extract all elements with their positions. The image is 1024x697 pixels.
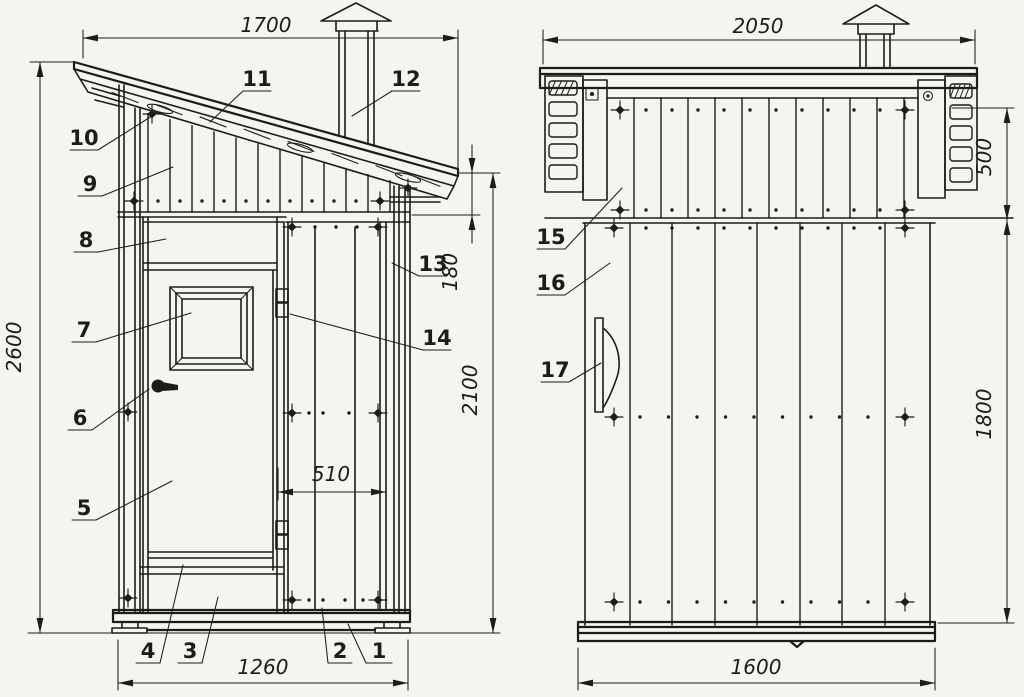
dim-front-low-side-height: 2100 <box>458 365 482 416</box>
svg-text:3: 3 <box>183 639 198 663</box>
nail-dot <box>724 415 727 418</box>
nail-dot <box>826 208 829 211</box>
nail-dot <box>826 108 829 111</box>
bolt-cross <box>615 205 624 214</box>
nail-dot <box>644 208 647 211</box>
generated-details <box>37 35 1011 687</box>
roof-grain-mark <box>244 129 270 139</box>
nail-dot <box>244 199 247 202</box>
bolt-cross <box>373 222 382 231</box>
nail-dot <box>354 199 357 202</box>
dimension-arrowhead <box>578 680 593 687</box>
dimension-arrowhead <box>393 680 408 687</box>
dimension-arrowhead <box>37 618 44 633</box>
bolt-cross <box>373 595 382 604</box>
bolt-cross <box>375 196 384 205</box>
nail-dot <box>347 411 350 414</box>
front-feet <box>112 622 410 633</box>
rafter-tail <box>549 102 577 116</box>
nail-dot <box>774 226 777 229</box>
svg-text:6: 6 <box>73 406 88 430</box>
part-label-16: 16 <box>536 263 610 295</box>
nail-dot <box>752 600 755 603</box>
nail-dot <box>670 208 673 211</box>
dim-side-wall-height: 1800 <box>972 389 996 440</box>
nail-dot <box>752 415 755 418</box>
nail-dot <box>748 208 751 211</box>
bolt-cross <box>123 407 132 416</box>
nail-dot <box>878 208 881 211</box>
part-label-13: 13 <box>392 252 448 276</box>
nail-dot <box>310 199 313 202</box>
nail-dot <box>334 225 337 228</box>
nail-dot <box>878 226 881 229</box>
nail-dot <box>852 208 855 211</box>
dimension-lines <box>30 30 1014 690</box>
nail-dot <box>852 226 855 229</box>
nail-dot <box>809 600 812 603</box>
bolt-cross <box>900 105 909 114</box>
bolt-cross <box>900 412 909 421</box>
part-label-7: 7 <box>72 313 191 342</box>
dimension-arrowhead <box>118 680 133 687</box>
part-label-6: 6 <box>68 389 149 430</box>
part-label-2: 2 <box>322 608 352 663</box>
front-door-frame <box>140 217 288 612</box>
front-gable-band <box>118 212 410 222</box>
svg-text:1: 1 <box>372 639 387 663</box>
nail-dot <box>343 598 346 601</box>
nail-dot <box>852 108 855 111</box>
bolt-cross <box>123 593 132 602</box>
dimension-arrowhead <box>443 35 458 42</box>
drawing-canvas: 1700 2600 2100 180 510 1260 2050 500 180… <box>0 0 1024 697</box>
bolt-cross <box>615 105 624 114</box>
nail-dot <box>781 415 784 418</box>
nail-dot <box>800 226 803 229</box>
nail-dot <box>667 415 670 418</box>
roof-grain-mark <box>200 117 226 127</box>
bolt-cross <box>129 196 138 205</box>
bolt-cross <box>609 412 618 421</box>
nail-dot <box>866 600 869 603</box>
rafter-tail <box>549 165 577 179</box>
dimension-arrowhead <box>920 680 935 687</box>
nail-dot <box>696 108 699 111</box>
front-right-wall <box>390 186 440 612</box>
dimension-arrowhead <box>490 618 497 633</box>
nail-dot <box>670 108 673 111</box>
svg-text:8: 8 <box>79 228 94 252</box>
nail-dot <box>748 108 751 111</box>
nail-dot <box>696 226 699 229</box>
svg-text:10: 10 <box>69 126 98 150</box>
front-right-bay-planks <box>315 222 386 610</box>
svg-text:15: 15 <box>536 225 565 249</box>
bolt-cross <box>900 205 909 214</box>
rafter-tail <box>950 105 972 119</box>
nail-dot <box>722 226 725 229</box>
nail-dot <box>321 411 324 414</box>
dimension-arrowhead <box>469 215 476 230</box>
rafter-tail <box>549 144 577 158</box>
svg-text:4: 4 <box>141 639 156 663</box>
nail-dot <box>866 415 869 418</box>
nail-dot <box>838 415 841 418</box>
svg-text:5: 5 <box>77 496 92 520</box>
rafter-tail <box>950 147 972 161</box>
nail-dot <box>800 108 803 111</box>
nail-dot <box>321 598 324 601</box>
front-door-window <box>170 287 253 370</box>
dimension-arrowhead <box>490 173 497 188</box>
nail-dot <box>355 225 358 228</box>
dim-side-roof-depth: 2050 <box>733 14 784 38</box>
side-chimney <box>843 5 909 68</box>
nail-dot <box>695 415 698 418</box>
svg-text:17: 17 <box>540 358 569 382</box>
side-view <box>540 5 1013 647</box>
dim-front-bay-width: 510 <box>312 462 350 486</box>
front-door-handle <box>152 380 179 393</box>
bolt-cross <box>609 597 618 606</box>
nail-dot <box>644 108 647 111</box>
svg-text:11: 11 <box>242 67 271 91</box>
front-chimney-pipe <box>339 31 374 146</box>
front-view <box>28 3 500 633</box>
nail-dot <box>722 208 725 211</box>
bolt-cross <box>900 597 909 606</box>
part-label-12: 12 <box>352 67 421 116</box>
dimension-arrowhead <box>469 158 476 173</box>
nail-dot <box>774 208 777 211</box>
bolt-cross <box>900 223 909 232</box>
svg-text:14: 14 <box>422 326 451 350</box>
nail-dot <box>667 600 670 603</box>
dimension-arrowhead <box>1004 608 1011 623</box>
svg-text:13: 13 <box>418 252 447 276</box>
svg-text:9: 9 <box>83 172 98 196</box>
svg-text:7: 7 <box>77 318 92 342</box>
nail-dot <box>748 226 751 229</box>
bolt-cross <box>609 223 618 232</box>
nail-dot <box>809 415 812 418</box>
nail-dot <box>307 598 310 601</box>
dim-side-gable-band-height: 500 <box>972 138 996 176</box>
rafter-tail <box>549 123 577 137</box>
dim-front-base-width: 1260 <box>238 655 289 679</box>
dimension-arrowhead <box>278 489 293 496</box>
dimension-arrowhead <box>960 37 975 44</box>
nail-dot <box>200 199 203 202</box>
nail-dot <box>774 108 777 111</box>
svg-text:2: 2 <box>333 639 348 663</box>
nail-dot <box>826 226 829 229</box>
side-base <box>578 622 935 647</box>
side-roof <box>540 68 977 88</box>
nail-dot <box>266 199 269 202</box>
nail-dot <box>724 600 727 603</box>
part-label-8: 8 <box>74 228 166 252</box>
nail-dot <box>781 600 784 603</box>
nail-dot <box>878 108 881 111</box>
dim-front-total-height: 2600 <box>2 322 26 373</box>
dimension-arrowhead <box>543 37 558 44</box>
bolt-cross <box>373 408 382 417</box>
dimension-arrowhead <box>371 489 386 496</box>
dimension-arrowhead <box>1004 108 1011 123</box>
nail-dot <box>332 199 335 202</box>
dim-side-base-depth: 1600 <box>731 655 782 679</box>
dimension-arrowhead <box>37 62 44 77</box>
part-label-17: 17 <box>540 358 601 382</box>
dim-front-roof-width: 1700 <box>241 13 292 37</box>
part-label-5: 5 <box>72 481 172 520</box>
technical-drawing-outhouse: 1700 2600 2100 180 510 1260 2050 500 180… <box>0 0 1024 697</box>
nail-dot <box>838 600 841 603</box>
nail-dot <box>800 208 803 211</box>
svg-text:16: 16 <box>536 271 565 295</box>
front-chimney-cap <box>321 3 391 31</box>
nail-dot <box>288 199 291 202</box>
side-gable-band <box>545 98 1013 223</box>
nail-dot <box>644 226 647 229</box>
bolt-cross <box>287 595 296 604</box>
nail-dot <box>722 108 725 111</box>
nail-dot <box>638 415 641 418</box>
nail-dot <box>361 598 364 601</box>
dimension-arrowhead <box>1004 220 1011 235</box>
rafter-tail <box>950 168 972 182</box>
nail-dot <box>695 600 698 603</box>
nail-dot <box>696 208 699 211</box>
svg-text:12: 12 <box>391 67 420 91</box>
nail-dot <box>178 199 181 202</box>
rafter-tail <box>950 126 972 140</box>
nail-dot <box>638 600 641 603</box>
nail-dot <box>307 411 310 414</box>
bolt-cross <box>287 408 296 417</box>
nail-dot <box>156 199 159 202</box>
dimension-arrowhead <box>83 35 98 42</box>
front-left-wall <box>119 85 140 612</box>
front-base <box>113 610 410 630</box>
nail-dot <box>313 225 316 228</box>
nail-dot <box>222 199 225 202</box>
part-label-9: 9 <box>78 167 173 196</box>
bolt-cross <box>287 222 296 231</box>
